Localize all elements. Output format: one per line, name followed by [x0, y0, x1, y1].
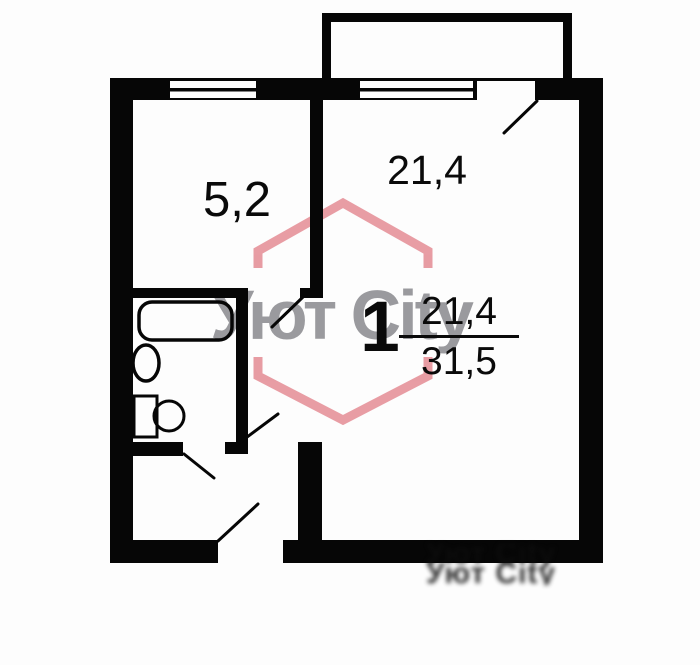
living-room-window-mullion: [360, 88, 473, 92]
wall-left: [110, 78, 133, 563]
floor-plan-canvas: Уют City: [0, 0, 700, 665]
wall-bottom-left: [110, 540, 218, 563]
kitchen-area-label: 5,2: [192, 176, 282, 225]
balcony-right-wall: [563, 13, 572, 78]
bathroom-bottom-wall: [133, 442, 183, 456]
area-fraction: 21,4 31,5: [399, 289, 519, 385]
bathtub-icon: [139, 302, 232, 340]
toilet-icon: [133, 345, 159, 381]
living-area-value: 21,4: [399, 289, 519, 338]
wall-right: [579, 78, 603, 563]
living-room-area-label: 21,4: [377, 150, 477, 191]
partition-wall: [310, 100, 323, 298]
sink-icon: [134, 396, 184, 437]
balcony-top-wall: [322, 13, 572, 22]
entry-door-swing: [218, 504, 258, 541]
illegible-watermark-artifact: Уют City Уют City: [426, 544, 622, 585]
total-area-value: 31,5: [399, 339, 519, 385]
bathroom-top-wall: [133, 288, 248, 298]
bathroom-door-swing: [184, 454, 214, 478]
bathroom-right-wall: [236, 288, 248, 453]
kitchen-door-swing: [272, 297, 303, 327]
rooms-count-label: 1: [358, 292, 402, 363]
kitchen-window-mullion: [170, 88, 256, 92]
balcony-left-wall: [322, 13, 331, 78]
hallway-stub-wall: [298, 442, 322, 543]
balcony-door-opening: [477, 81, 535, 100]
balcony-door-swing: [504, 101, 537, 133]
